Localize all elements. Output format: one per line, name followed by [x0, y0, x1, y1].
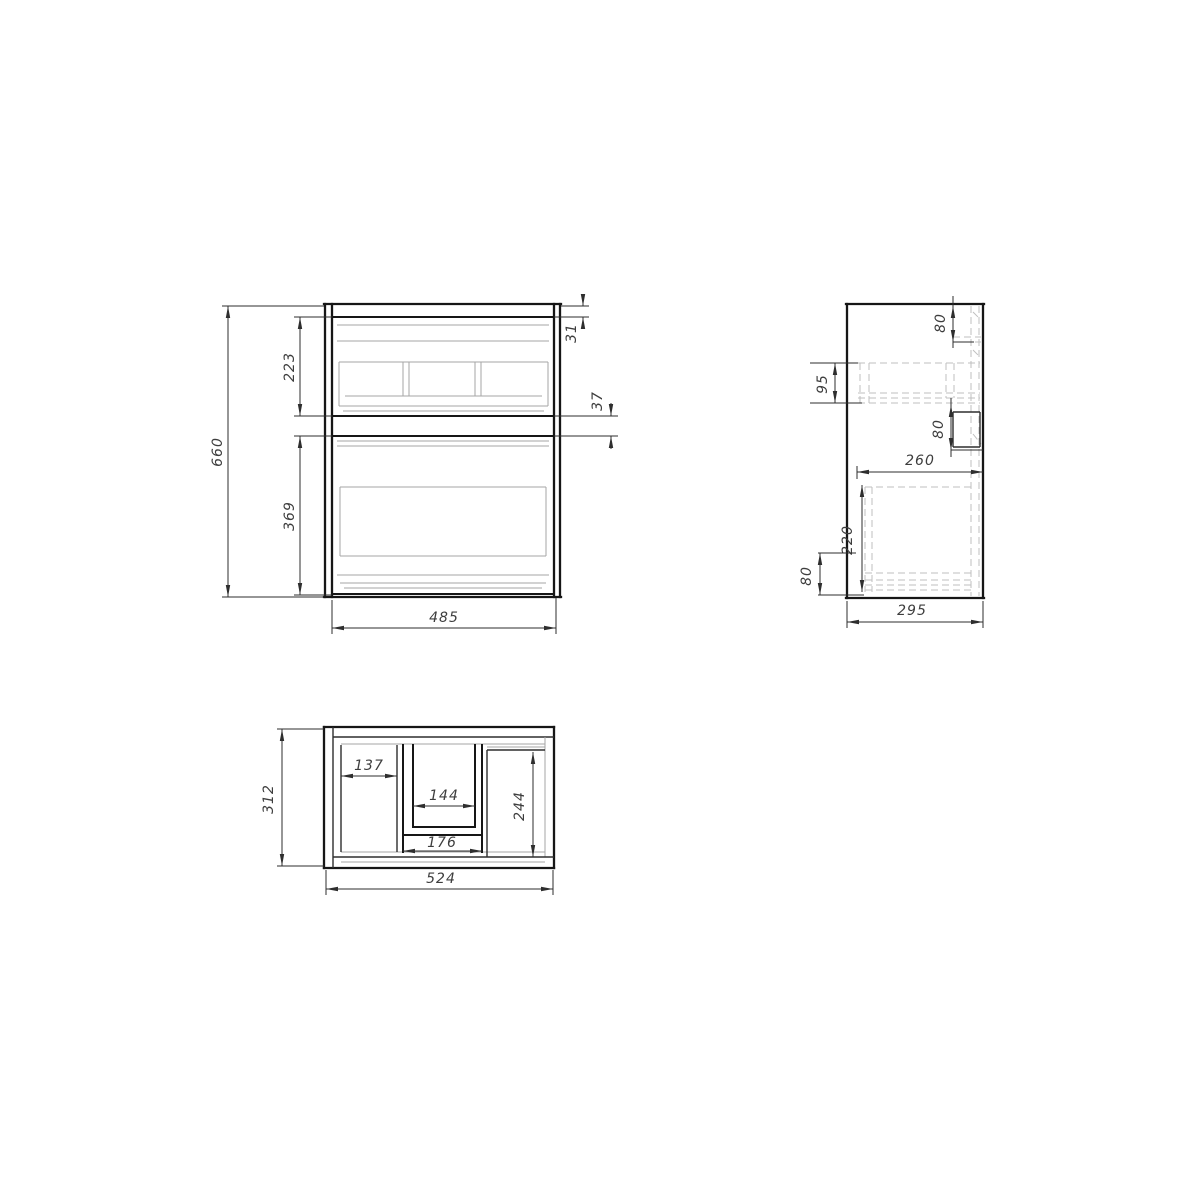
plan-view: 312 137 144 176 244 524	[261, 727, 554, 895]
dimension-side-bottom-inset: 80	[799, 553, 864, 595]
dim-label-plan-total-width: 524	[426, 871, 456, 887]
dimension-plan-right-bay: 244	[512, 752, 533, 857]
dim-label-side-mid-inset: 80	[931, 419, 947, 439]
dimension-plan-left-bay: 137	[341, 758, 397, 776]
dim-label-side-total-depth: 295	[897, 603, 927, 619]
front-drawer-bottom	[332, 436, 554, 594]
front-carcass	[324, 304, 561, 597]
dim-label-plan-cutout-inner: 144	[429, 788, 459, 804]
dim-label-front-drawer-gap: 37	[590, 391, 606, 411]
dimension-plan-total-width: 524	[326, 870, 553, 895]
dim-label-side-box-height: 220	[840, 525, 856, 555]
dimension-front-drawer-gap: 37	[554, 391, 618, 449]
drawing-sheet: 660 223 369 31 37	[0, 0, 1200, 1200]
dimension-plan-cutout-outer: 176	[403, 835, 482, 851]
dim-label-plan-total-depth: 312	[261, 784, 277, 814]
dimension-front-total-height: 660	[210, 306, 324, 597]
dim-label-plan-left-bay: 137	[354, 758, 384, 774]
dim-label-side-bottom-inset: 80	[799, 566, 815, 586]
dimension-side-mid-inset: 80	[931, 398, 983, 457]
dim-label-front-top-drawer: 223	[282, 352, 298, 382]
dimension-front-width: 485	[332, 598, 556, 634]
side-rail-bracket	[953, 412, 980, 447]
side-hidden-lines	[858, 306, 981, 596]
dimension-plan-cutout-inner: 144	[413, 788, 475, 806]
front-drawer-top	[332, 317, 554, 416]
dim-label-side-inner-depth: 260	[905, 453, 935, 469]
dimension-side-inner-depth: 260	[857, 453, 983, 479]
dim-label-front-width: 485	[429, 610, 459, 626]
dim-label-front-top-reveal: 31	[564, 323, 580, 343]
side-view: 80 95 80 260 220 80	[799, 296, 984, 628]
dim-label-front-total-height: 660	[210, 437, 226, 467]
dimension-side-total-depth: 295	[847, 601, 983, 628]
dimension-plan-total-depth: 312	[261, 729, 324, 866]
technical-drawing-canvas: 660 223 369 31 37	[0, 0, 1200, 1200]
dim-label-front-bottom-drawer: 369	[282, 501, 298, 531]
side-outline	[846, 304, 984, 598]
dim-label-plan-right-bay: 244	[512, 791, 528, 821]
dimension-side-box-height: 220	[840, 485, 862, 592]
dim-label-plan-cutout-outer: 176	[427, 835, 457, 851]
dim-label-side-rail-band: 95	[815, 374, 831, 394]
dimension-side-rail-band: 95	[810, 363, 862, 403]
dim-label-side-top-inset: 80	[933, 313, 949, 333]
front-view: 660 223 369 31 37	[210, 294, 618, 634]
